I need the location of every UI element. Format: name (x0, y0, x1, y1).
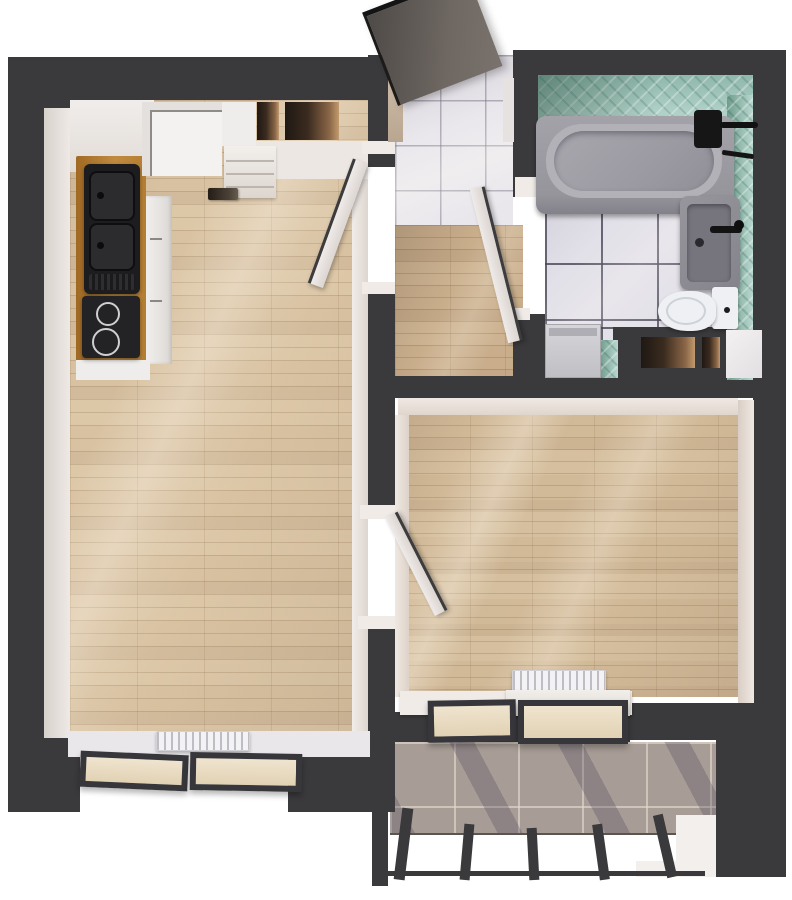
washing-machine-panel (549, 328, 597, 336)
kitchen-sink-drain-dot-2 (97, 242, 104, 249)
balcony-rail-bottom (385, 871, 705, 876)
kitchen-burner-small (96, 302, 120, 326)
living-room-window-right (190, 752, 303, 792)
wall-duct-niche-small (257, 102, 279, 140)
toilet-seat-line (666, 297, 706, 325)
kitchen-sink-bowl-upper (89, 171, 135, 221)
kitchen-sink-drainboard (89, 274, 135, 290)
railing-post-3 (527, 828, 540, 880)
living-room-window-left (79, 751, 188, 792)
living-room-right-wall-face (352, 167, 368, 745)
basin-drain-dot (695, 238, 704, 247)
bath-wall-niche-small (702, 337, 720, 368)
wall-bedroom-bottom-right (623, 703, 756, 740)
bathroom-corner-panel (726, 330, 762, 378)
kitchen-sink-drain-dot-1 (97, 192, 104, 199)
kitchen-fridge (142, 102, 222, 176)
floor-plan (0, 0, 792, 900)
bath-wall-niche-large (641, 337, 695, 368)
kitchen-counter-end-panel (76, 360, 150, 380)
shower-arm (720, 122, 758, 128)
shoe-shelf-line-2 (226, 173, 274, 175)
bedroom-floor (408, 413, 738, 697)
left-wall-inner-face (44, 108, 70, 738)
partition-mid-end-cap (362, 282, 395, 294)
bathtub-basin (554, 131, 714, 191)
shower-mixer (694, 110, 722, 148)
washbasin-bowl (687, 204, 731, 282)
bedroom-top-wall-face (398, 398, 738, 415)
partition-top-end-cap (362, 141, 395, 154)
bedroom-radiator (512, 670, 606, 692)
living-room-radiator (156, 731, 250, 751)
bathroom-teal-nook-wall (600, 340, 618, 378)
wall-partition-mid (368, 290, 395, 519)
entry-door-right-jamb (503, 78, 514, 142)
bedroom-window-left (428, 699, 517, 743)
balcony-floor (390, 742, 716, 835)
kitchen-cabinet-handle-1 (150, 238, 162, 240)
floor-vent (208, 188, 238, 200)
shoe-shelf-line-1 (226, 160, 274, 162)
bedroom-right-wall-face (738, 400, 754, 703)
toilet-flush-button (724, 307, 730, 313)
kitchen-cabinet-fronts (146, 196, 172, 364)
kitchen-cabinet-handle-2 (150, 300, 162, 302)
bedroom-window-right (518, 700, 628, 744)
kitchen-sink-bowl-lower (89, 223, 135, 271)
kitchen-tall-cabinet (222, 102, 256, 146)
wall-balcony-right (716, 737, 786, 877)
basin-faucet-knob (734, 220, 744, 230)
kitchen-burner-large (92, 328, 120, 356)
wall-partition-low (368, 616, 395, 812)
partition-low-end-cap (358, 616, 395, 629)
wall-duct-niche-large (285, 102, 339, 140)
wall-hall-bedroom (368, 376, 627, 398)
